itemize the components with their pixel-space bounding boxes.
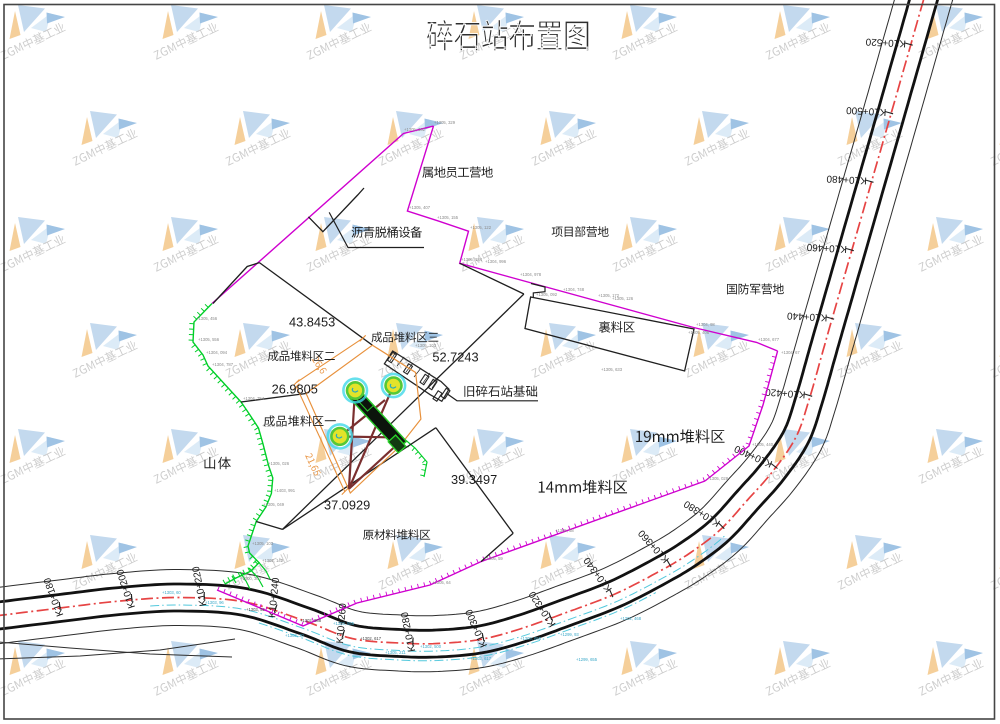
svg-text:+1305, 58: +1305, 58 <box>555 528 574 533</box>
svg-text:43.8453: 43.8453 <box>289 315 335 330</box>
svg-text:+1302, 468: +1302, 468 <box>620 616 642 621</box>
svg-text:+1304, 67: +1304, 67 <box>781 350 800 355</box>
svg-text:+1300, 303: +1300, 303 <box>240 576 262 581</box>
svg-text:+1305, 633: +1305, 633 <box>601 367 623 372</box>
svg-text:+1305, 211: +1305, 211 <box>385 650 406 655</box>
svg-text:K10+500: K10+500 <box>845 104 886 117</box>
svg-text:+1302, 500: +1302, 500 <box>420 644 442 649</box>
svg-text:+1305, 126: +1305, 126 <box>612 296 634 301</box>
svg-text:+1303, 60: +1303, 60 <box>162 590 181 595</box>
svg-text:+1304, 98: +1304, 98 <box>696 322 715 327</box>
svg-text:+1305, 329: +1305, 329 <box>434 120 456 125</box>
svg-text:+1305, 103: +1305, 103 <box>415 343 437 348</box>
svg-text:+1299, 93: +1299, 93 <box>560 632 579 637</box>
svg-text:K10+440: K10+440 <box>786 310 827 323</box>
svg-text:+1403, 991: +1403, 991 <box>274 488 296 493</box>
svg-text:+1305, 092: +1305, 092 <box>536 292 558 297</box>
svg-text:+1302, 617: +1302, 617 <box>360 636 382 641</box>
svg-text:+1305, 406: +1305, 406 <box>688 330 710 335</box>
svg-text:+1305, 028: +1305, 028 <box>707 476 729 481</box>
svg-text:+1304, 978: +1304, 978 <box>520 272 542 277</box>
svg-text:+1304, 754: +1304, 754 <box>243 396 265 401</box>
svg-text:+1305, 556: +1305, 556 <box>198 337 220 342</box>
svg-text:+1305, 049: +1305, 049 <box>263 502 285 507</box>
svg-text:+1303, 585: +1303, 585 <box>333 621 355 626</box>
svg-text:+1307, 333: +1307, 333 <box>262 423 284 428</box>
svg-text:+1305, 155: +1305, 155 <box>437 215 459 220</box>
svg-text:K10+460: K10+460 <box>806 241 847 254</box>
svg-text:+1305, 026: +1305, 026 <box>268 461 290 466</box>
svg-text:+1305, 362: +1305, 362 <box>404 127 426 132</box>
svg-text:+1305, 103: +1305, 103 <box>252 541 274 546</box>
svg-text:+1302, 617: +1302, 617 <box>470 656 492 661</box>
svg-text:+1305, 64: +1305, 64 <box>432 580 451 585</box>
svg-text:+1305, 184: +1305, 184 <box>461 257 483 262</box>
svg-text:+1303, 96: +1303, 96 <box>205 600 224 605</box>
svg-text:39.3497: 39.3497 <box>451 472 497 487</box>
svg-text:26.9805: 26.9805 <box>272 382 318 397</box>
svg-text:+1303, 92: +1303, 92 <box>246 607 265 612</box>
svg-text:52.7243: 52.7243 <box>432 350 478 365</box>
svg-text:+1304, 677: +1304, 677 <box>758 337 780 342</box>
svg-text:+1305, 440: +1305, 440 <box>752 442 774 447</box>
svg-text:+1304, 094: +1304, 094 <box>206 350 228 355</box>
svg-text:+1305, 59: +1305, 59 <box>484 556 503 561</box>
svg-text:+1299, 655: +1299, 655 <box>576 657 598 662</box>
svg-text:+1304, 996: +1304, 996 <box>485 259 507 264</box>
svg-text:+1305, 407: +1305, 407 <box>409 205 431 210</box>
svg-text:+1305, 122: +1305, 122 <box>470 225 492 230</box>
svg-text:+1303, 30: +1303, 30 <box>285 633 304 638</box>
svg-text:+1305, 456: +1305, 456 <box>196 316 218 321</box>
svg-text:K10+480: K10+480 <box>826 173 867 186</box>
svg-text:K10+520: K10+520 <box>865 36 906 49</box>
svg-text:37.0929: 37.0929 <box>324 498 370 513</box>
svg-text:+1302, 142: +1302, 142 <box>262 558 284 563</box>
svg-text:+1304, 748: +1304, 748 <box>563 287 585 292</box>
svg-text:+1300, 655: +1300, 655 <box>520 636 542 641</box>
svg-text:+1304, 787: +1304, 787 <box>212 362 234 367</box>
svg-text:+1302, 988: +1302, 988 <box>300 618 322 623</box>
